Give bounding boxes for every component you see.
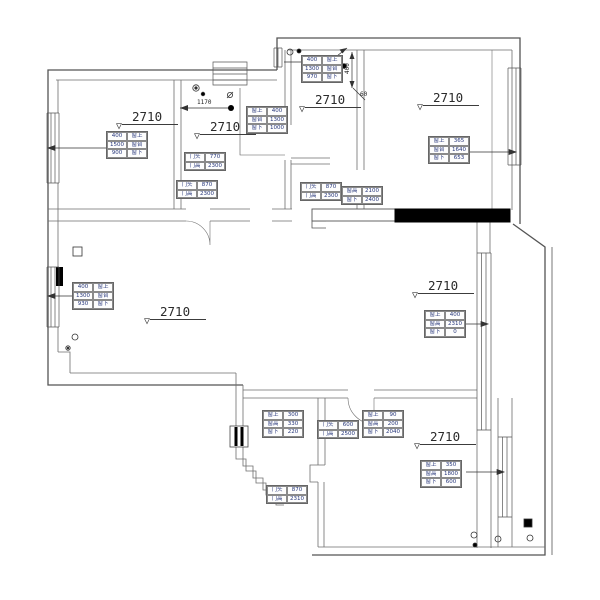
annotation-cell: 门头 — [301, 183, 321, 192]
annotation-cell: 2300 — [205, 162, 225, 171]
annotation-table-window-bottomright: 窗上350窗高1800窗下600 — [420, 460, 462, 488]
annotation-cell: 600 — [338, 421, 358, 430]
annotation-cell: 窗下 — [425, 328, 445, 337]
elevation-marker-icon: ▽ — [412, 289, 418, 302]
annotation-table-door-hall-b: 窗高2100窗下2400 — [341, 186, 383, 205]
dimension-1170: 1170 — [180, 99, 234, 111]
annotation-cell: 窗上 — [93, 283, 113, 292]
annotation-cell: 窗上 — [263, 411, 283, 420]
elevation-marker-icon: ▽ — [144, 315, 150, 328]
elevation-value: 2710 — [210, 119, 240, 134]
annotation-cell: 窗下 — [263, 428, 283, 437]
annotation-cell: 窗下 — [322, 73, 342, 82]
annotation-cell: 窗高 — [363, 420, 383, 429]
annotation-table-window-kitchen: 窗上400窗台1300窗下1000 — [246, 106, 288, 134]
annotation-table-window-entry: 400窗上1300窗台970窗下 — [301, 55, 343, 83]
elevation-marker-icon: ▽ — [414, 440, 420, 453]
annotation-cell: 400 — [445, 311, 465, 320]
annotation-cell: 门高 — [267, 495, 287, 504]
annotation-cell: 窗下 — [93, 300, 113, 309]
annotation-cell: 350 — [441, 461, 461, 470]
annotation-cell: 窗高 — [342, 187, 362, 196]
annotation-cell: 1000 — [267, 124, 287, 133]
annotation-cell: 窗高 — [421, 470, 441, 479]
annotation-cell: 970 — [302, 73, 322, 82]
annotation-cell: 2500 — [338, 430, 358, 439]
annotation-cell: 门头 — [267, 486, 287, 495]
elevation-value: 2710 — [433, 90, 463, 105]
elevation-value: 2710 — [428, 278, 458, 293]
annotation-table-cabinet-bottom: 窗上300窗高330窗下220 — [262, 410, 304, 438]
room-label-bedroom-bottom: ▽ 2710 — [420, 430, 476, 445]
annotation-cell: 窗高 — [263, 420, 283, 429]
elevation-marker-icon: ▽ — [417, 101, 423, 114]
annotation-cell: 400 — [73, 283, 93, 292]
annotation-cell: 930 — [73, 300, 93, 309]
annotation-cell: 窗下 — [429, 154, 449, 163]
annotation-table-door-bottom: 门头600门高2500 — [317, 420, 359, 439]
annotation-table-door-bath: 门头870门高2310 — [266, 485, 308, 504]
filled-wall-left — [56, 267, 63, 286]
annotation-cell: 窗上 — [429, 137, 449, 146]
annotation-cell: 200 — [383, 420, 403, 429]
annotation-cell: 1500 — [107, 141, 127, 150]
annotation-cell: 窗上 — [127, 132, 147, 141]
annotation-cell: 1300 — [302, 65, 322, 74]
annotation-cell: 门高 — [177, 190, 197, 199]
annotation-cell: 2040 — [383, 428, 403, 437]
annotation-cell: 窗下 — [342, 196, 362, 205]
elevation-value: 2710 — [430, 429, 460, 444]
annotation-cell: 窗台 — [127, 141, 147, 150]
annotation-cell: 门头 — [318, 421, 338, 430]
filled-wall-segment — [395, 209, 510, 222]
annotation-cell: 窗台 — [322, 65, 342, 74]
annotation-table-window-topright: 窗上365窗台1640窗下653 — [428, 136, 470, 164]
annotation-cell: 窗下 — [127, 149, 147, 158]
annotation-cell: 窗下 — [247, 124, 267, 133]
annotation-cell: 窗上 — [425, 311, 445, 320]
elevation-value: 2710 — [160, 304, 190, 319]
elevation-marker-icon: ▽ — [194, 130, 200, 143]
bearing-wall — [56, 209, 510, 286]
annotation-cell: 220 — [283, 428, 303, 437]
annotation-cell: 窗台 — [247, 116, 267, 125]
annotation-cell: 2300 — [321, 192, 341, 201]
annotation-cell: 窗上 — [247, 107, 267, 116]
room-label-entry: ▽ 2710 — [305, 93, 361, 108]
annotation-cell: 窗下 — [363, 428, 383, 437]
annotation-cell: 0 — [445, 328, 465, 337]
annotation-table-door-kitchen-a: 门头770门高2300 — [184, 152, 226, 171]
annotation-table-window-bottom-mid: 窗上90窗高200窗下2040 — [362, 410, 404, 438]
annotation-cell: 2310 — [445, 320, 465, 329]
room-label-bedroom-topleft: ▽ 2710 — [122, 110, 178, 125]
annotation-cell: 1300 — [73, 292, 93, 301]
annotation-cell: 330 — [283, 420, 303, 429]
annotation-cell: 窗上 — [421, 461, 441, 470]
annotation-cell: 300 — [283, 411, 303, 420]
floor-plan: 1170 400 60 ▽ 2710 ▽ 2710 ▽ 2710 ▽ 2710 — [0, 0, 600, 600]
annotation-cell: 门头 — [185, 153, 205, 162]
annotation-cell: 400 — [302, 56, 322, 65]
annotation-cell: 870 — [197, 181, 217, 190]
annotation-cell: 2300 — [197, 190, 217, 199]
elevation-marker-icon: ▽ — [299, 103, 305, 116]
annotation-cell: 770 — [205, 153, 225, 162]
annotation-cell: 门头 — [177, 181, 197, 190]
room-label-living: ▽ 2710 — [150, 305, 206, 320]
annotation-cell: 窗上 — [322, 56, 342, 65]
annotation-cell: 600 — [441, 478, 461, 487]
annotation-cell: 2400 — [362, 196, 382, 205]
annotation-table-door-hall-a: 门头870门高2300 — [300, 182, 342, 201]
room-label-bedroom-topright: ▽ 2710 — [423, 91, 479, 106]
annotation-cell: 1800 — [441, 470, 461, 479]
annotation-cell: 1640 — [449, 146, 469, 155]
annotation-cell: 窗上 — [363, 411, 383, 420]
annotation-cell: 2100 — [362, 187, 382, 196]
bottom-window-element — [230, 426, 248, 447]
annotation-cell: 窗台 — [93, 292, 113, 301]
annotation-cell: 870 — [321, 183, 341, 192]
annotation-table-window-living-left: 400窗上1300窗台930窗下 — [72, 282, 114, 310]
annotation-cell: 365 — [449, 137, 469, 146]
annotation-table-window-living-right: 窗上400窗高2310窗下0 — [424, 310, 466, 338]
annotation-table-window-topleft: 400窗上1500窗台900窗下 — [106, 131, 148, 159]
annotation-cell: 门高 — [185, 162, 205, 171]
annotation-cell: 门高 — [318, 430, 338, 439]
annotation-cell: 400 — [107, 132, 127, 141]
annotation-cell: 2310 — [287, 495, 307, 504]
annotation-cell: 653 — [449, 154, 469, 163]
annotation-cell: 400 — [267, 107, 287, 116]
annotation-cell: 窗台 — [429, 146, 449, 155]
annotation-cell: 1300 — [267, 116, 287, 125]
annotation-cell: 门高 — [301, 192, 321, 201]
annotation-table-door-kitchen-b: 门头870门高2300 — [176, 180, 218, 199]
svg-text:60: 60 — [360, 91, 368, 98]
elevation-value: 2710 — [315, 92, 345, 107]
elevation-value: 2710 — [132, 109, 162, 124]
svg-text:1170: 1170 — [197, 99, 212, 106]
annotation-cell: 870 — [287, 486, 307, 495]
annotation-cell: 90 — [383, 411, 403, 420]
room-label-dining: ▽ 2710 — [418, 279, 474, 294]
annotation-cell: 窗下 — [421, 478, 441, 487]
annotation-cell: 窗高 — [425, 320, 445, 329]
annotation-cell: 900 — [107, 149, 127, 158]
